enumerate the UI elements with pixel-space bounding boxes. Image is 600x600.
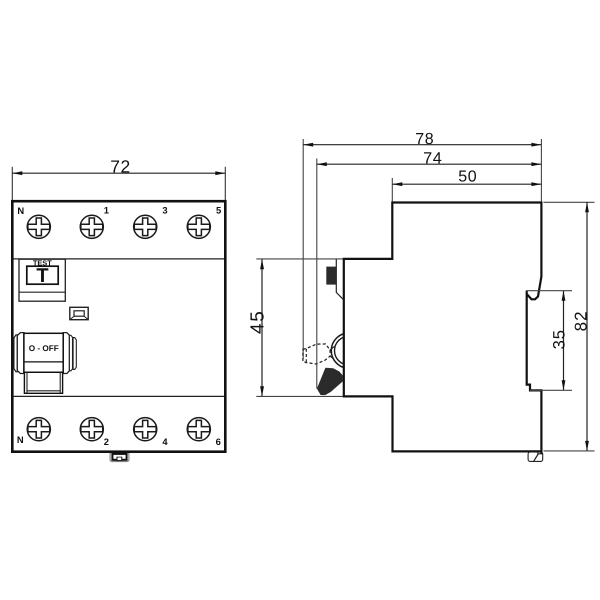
- svg-text:3: 3: [162, 204, 167, 215]
- svg-text:N: N: [17, 434, 24, 445]
- svg-text:T: T: [36, 265, 48, 287]
- svg-text:74: 74: [423, 150, 442, 168]
- svg-text:5: 5: [216, 204, 221, 215]
- svg-text:O - OFF: O - OFF: [29, 344, 59, 353]
- svg-text:N: N: [17, 205, 24, 216]
- svg-text:6: 6: [216, 436, 221, 447]
- svg-text:72: 72: [110, 157, 130, 177]
- svg-text:2: 2: [104, 436, 109, 447]
- svg-text:35: 35: [550, 329, 568, 349]
- svg-text:50: 50: [458, 169, 477, 186]
- svg-text:1: 1: [104, 204, 109, 215]
- svg-text:4: 4: [162, 436, 168, 447]
- svg-text:82: 82: [572, 310, 591, 331]
- svg-text:78: 78: [415, 131, 434, 148]
- svg-text:45: 45: [248, 310, 269, 334]
